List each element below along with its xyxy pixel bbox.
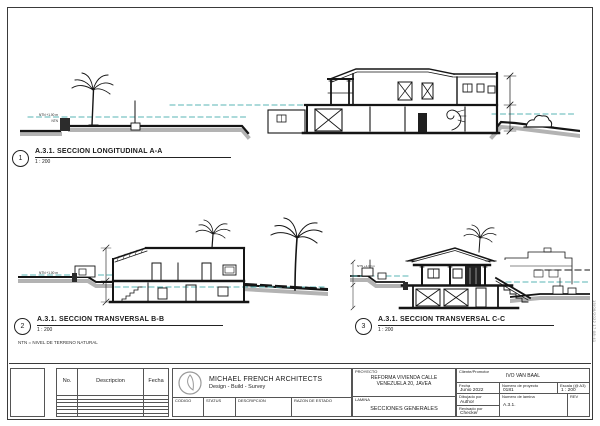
firm-name: MICHAEL FRENCH ARCHITECTS bbox=[209, 376, 322, 383]
section-title: A.3.1. SECCION TRANSVERSAL C-C bbox=[378, 316, 554, 326]
firm-block: MICHAEL FRENCH ARCHITECTS Design - Build… bbox=[172, 368, 352, 417]
numero-proyecto-value: 0181 bbox=[500, 388, 557, 393]
title-block: No. Descripcion Fecha MICHAEL FRENCH ARC… bbox=[9, 363, 591, 419]
ntn-note: NTN = NIVEL DE TERRENO NATURAL bbox=[18, 340, 98, 345]
revision-header-descripcion: Descripcion bbox=[77, 369, 143, 393]
project-block: PROYECTO REFORMA VIVIENDA CALLE VENEZUEL… bbox=[352, 368, 456, 417]
drawing-number-circle: 2 bbox=[14, 318, 31, 335]
drawing-number-circle: 1 bbox=[12, 150, 29, 167]
fecha-value: Junio 2022 bbox=[457, 388, 499, 393]
numero-lamina-value: A.3.1. bbox=[500, 400, 567, 408]
status-label: STATUS bbox=[204, 398, 235, 403]
drawing-number-circle: 3 bbox=[355, 318, 372, 335]
client-block: Cliente/Promotor IVO VAN BAAL Fecha Juni… bbox=[456, 368, 590, 417]
revision-header-row: No. Descripcion Fecha bbox=[57, 369, 168, 393]
revision-header-fecha: Fecha bbox=[143, 369, 168, 393]
section-transversal-bb-drawing: NTN +1.00 m bbox=[18, 212, 328, 312]
section-transversal-cc-drawing: NTN +1.00 m bbox=[350, 222, 590, 317]
drawing-sheet: NTN +1.00 m NTN bbox=[0, 0, 600, 426]
descripcion-label: DESCRIPCION bbox=[236, 398, 291, 403]
revision-header-no: No. bbox=[57, 369, 77, 393]
revision-table: No. Descripcion Fecha bbox=[56, 368, 169, 417]
sheet-title: SECCIONES GENERALES bbox=[353, 402, 455, 412]
empty-box bbox=[10, 368, 45, 417]
section-label-1: 1 A.3.1. SECCION LONGITUDINAL A-A 1 : 20… bbox=[12, 148, 231, 167]
codigo-label: CODIGO bbox=[173, 398, 203, 403]
ntn-level-label: NTN +1.00 m bbox=[357, 264, 375, 268]
revisado-value: Checker bbox=[457, 411, 499, 416]
section-scale: 1 : 200 bbox=[35, 159, 231, 165]
ntn-level-label: NTN +1.00 m bbox=[39, 113, 58, 117]
section-scale: 1 : 200 bbox=[37, 327, 223, 333]
rev-label: REV bbox=[568, 394, 589, 399]
ntn-label: NTN bbox=[51, 119, 58, 123]
razon-de-estado-label: RAZON DE ESTADO bbox=[292, 398, 351, 403]
revision-rows bbox=[57, 393, 168, 417]
section-title: A.3.1. SECCION TRANSVERSAL B-B bbox=[37, 316, 223, 326]
section-title: A.3.1. SECCION LONGITUDINAL A-A bbox=[35, 148, 231, 158]
section-scale: 1 : 200 bbox=[378, 327, 554, 333]
ntn-level-label: NTN +1.00 m bbox=[39, 271, 58, 275]
plot-stamp: 15/06/2022 17:08:41 bbox=[592, 300, 597, 342]
section-label-2: 2 A.3.1. SECCION TRANSVERSAL B-B 1 : 200 bbox=[14, 316, 223, 335]
client-name: IVO VAN BAAL bbox=[457, 374, 589, 380]
section-label-3: 3 A.3.1. SECCION TRANSVERSAL C-C 1 : 200 bbox=[355, 316, 554, 335]
escala-value: 1 : 200 bbox=[558, 388, 589, 393]
project-name: REFORMA VIVIENDA CALLE VENEZUELA 20, JAV… bbox=[353, 374, 455, 388]
revision-row bbox=[57, 413, 168, 417]
firm-tagline: Design - Build - Survey bbox=[209, 384, 322, 390]
firm-logo-icon bbox=[177, 370, 203, 396]
section-longitudinal-drawing: NTN +1.00 m NTN bbox=[20, 52, 580, 142]
